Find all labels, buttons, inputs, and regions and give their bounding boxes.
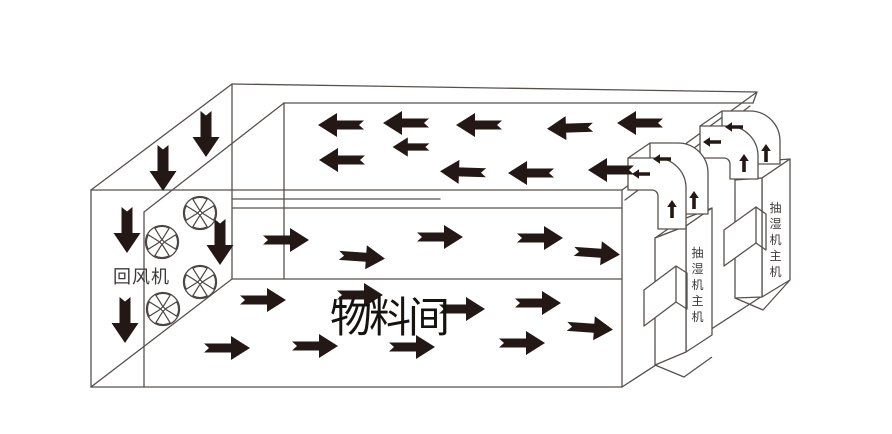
room-label: 物料间 [330,284,447,345]
fan-icon [184,266,217,299]
plenum-left-arrows [318,111,663,185]
dehumidifier-front-label: 抽湿机主机 [690,245,705,325]
return-fan-icons [146,197,217,326]
diagram-canvas [0,0,892,434]
dehumidification-room-diagram: 回风机 物料间 抽湿机主机 抽湿机主机 [0,0,892,434]
fan-icon [146,226,179,259]
return-fan-label: 回风机 [113,263,170,289]
fan-icon [147,293,180,326]
fan-icon [184,197,217,230]
duct-front-front-channel [628,158,686,229]
room-middle-right-arrows [263,225,621,271]
dehumidifier-rear-label: 抽湿机主机 [768,200,783,280]
